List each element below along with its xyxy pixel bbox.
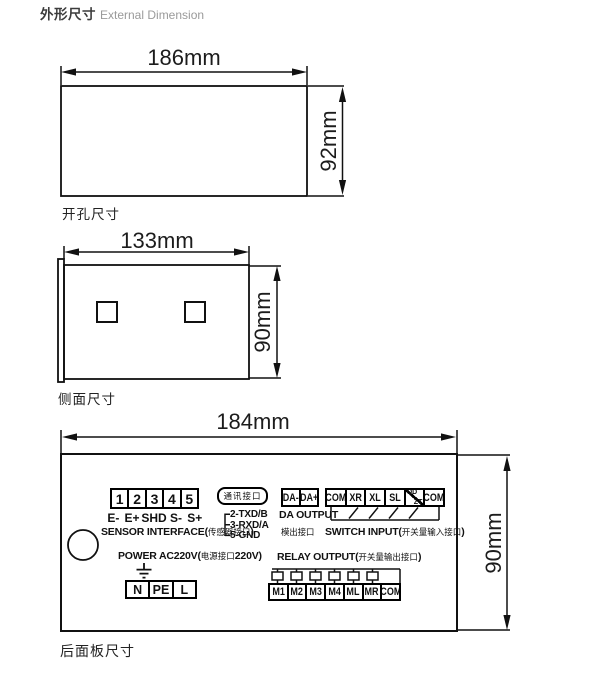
fig-cutout-height-dim: 90mm (251, 277, 275, 367)
switch-terminal-xr: XR (345, 490, 365, 505)
relay-terminal-m1: M1 (270, 585, 287, 599)
rear-panel-caption: 后面板尺寸 (60, 641, 135, 661)
fig-external-width-dim: 186mm (139, 46, 229, 70)
comm-port-label: 通讯接口 (223, 490, 261, 502)
power-label-zh: 电源接口 (201, 551, 235, 561)
relay-output-label-en: RELAY OUTPUT( (277, 551, 358, 563)
sensor-terminal-strip: 1 2 3 4 5 (110, 488, 199, 509)
fig-cutout-width-dim: 133mm (112, 229, 202, 253)
switch-terminal-com-right: COM (423, 490, 443, 505)
fig-cutout-caption: 侧面尺寸 (58, 388, 116, 408)
switch-input-label-en: SWITCH INPUT( (325, 526, 402, 538)
fig-external-caption: 开孔尺寸 (62, 203, 120, 223)
switch-terminal-xl: XL (364, 490, 384, 505)
sensor-terminal-4: 4 (162, 490, 179, 507)
da-minus-terminal: DA- (283, 490, 299, 505)
fig-external-linework (61, 66, 346, 196)
sensor-interface-label-en: SENSOR INTERFACE( (101, 526, 208, 538)
power-label: POWER AC220V(电源接口220V) (118, 550, 262, 562)
page-title: 外形尺寸External Dimension (40, 3, 204, 23)
power-terminal-pe: PE (148, 582, 171, 597)
rear-panel-height-dim: 90mm (482, 498, 506, 588)
dimension-sheet: { "page": { "title_zh": "外形尺寸", "title_e… (0, 0, 600, 687)
page-title-en: External Dimension (100, 8, 204, 22)
switch-input-label-close: ) (461, 526, 464, 538)
power-terminal-strip: N PE L (125, 580, 197, 599)
serial-pin-txd: 2-TXD/B (230, 510, 268, 520)
page-title-zh: 外形尺寸 (40, 7, 96, 22)
comm-port-connector: 通讯接口 (217, 487, 268, 505)
sensor-pin-e-plus: E+ (123, 511, 142, 525)
serial-pin-rxd: 3-RXD/A (230, 521, 269, 531)
relay-output-label-zh: 开关量输出接口 (358, 552, 418, 562)
power-terminal-l: L (172, 582, 195, 597)
power-label-voltage: 220V) (235, 550, 262, 562)
switch-terminal-qd-zt: QD ZT (404, 490, 424, 505)
sensor-pin-shd: SHD (141, 511, 166, 525)
relay-terminal-com: COM (380, 585, 399, 599)
power-label-en: POWER AC220V( (118, 550, 201, 562)
relay-output-wiring (272, 569, 400, 583)
sensor-terminal-2: 2 (127, 490, 144, 507)
switch-input-label-zh: 开关量输入接口 (402, 527, 462, 537)
rear-panel-width-dim: 184mm (208, 410, 298, 434)
switch-terminal-strip: COM XR XL SL QD ZT COM (325, 488, 445, 507)
relay-terminal-m4: M4 (324, 585, 343, 599)
sensor-terminal-3: 3 (145, 490, 162, 507)
sensor-pin-s-minus: S- (167, 511, 186, 525)
switch-terminal-qd: QD (407, 490, 418, 496)
switch-input-label: SWITCH INPUT(开关量输入接口) (325, 526, 465, 538)
relay-terminal-mr: MR (362, 585, 381, 599)
fig-cutout-linework (58, 246, 281, 382)
da-output-label: DA OUTPUT (279, 509, 338, 521)
da-terminal-strip: DA- DA+ (281, 488, 319, 507)
sensor-pin-labels: E- E+ SHD S- S+ (104, 511, 204, 525)
panel-hole (68, 530, 98, 560)
relay-terminal-strip: M1 M2 M3 M4 ML MR COM (268, 583, 401, 601)
relay-output-label: RELAY OUTPUT(开关量输出接口) (277, 551, 421, 563)
sensor-terminal-1: 1 (112, 490, 127, 507)
da-output-label-zh: 模出接口 (281, 526, 314, 538)
switch-terminal-zt: ZT (414, 499, 423, 505)
relay-terminal-ml: ML (343, 585, 362, 599)
relay-terminal-m2: M2 (287, 585, 306, 599)
sensor-pin-e-minus: E- (104, 511, 123, 525)
ground-symbol (137, 563, 152, 578)
sensor-terminal-5: 5 (180, 490, 197, 507)
serial-pin-gnd: 5-GND (230, 531, 260, 541)
da-plus-terminal: DA+ (299, 490, 317, 505)
fig-external-height-dim: 92mm (317, 96, 341, 186)
relay-terminal-m3: M3 (305, 585, 324, 599)
relay-output-label-close: ) (418, 551, 421, 563)
power-terminal-n: N (127, 582, 148, 597)
switch-terminal-com-left: COM (327, 490, 345, 505)
switch-input-wiring (331, 506, 439, 520)
sensor-pin-s-plus: S+ (185, 511, 204, 525)
switch-terminal-sl: SL (384, 490, 404, 505)
